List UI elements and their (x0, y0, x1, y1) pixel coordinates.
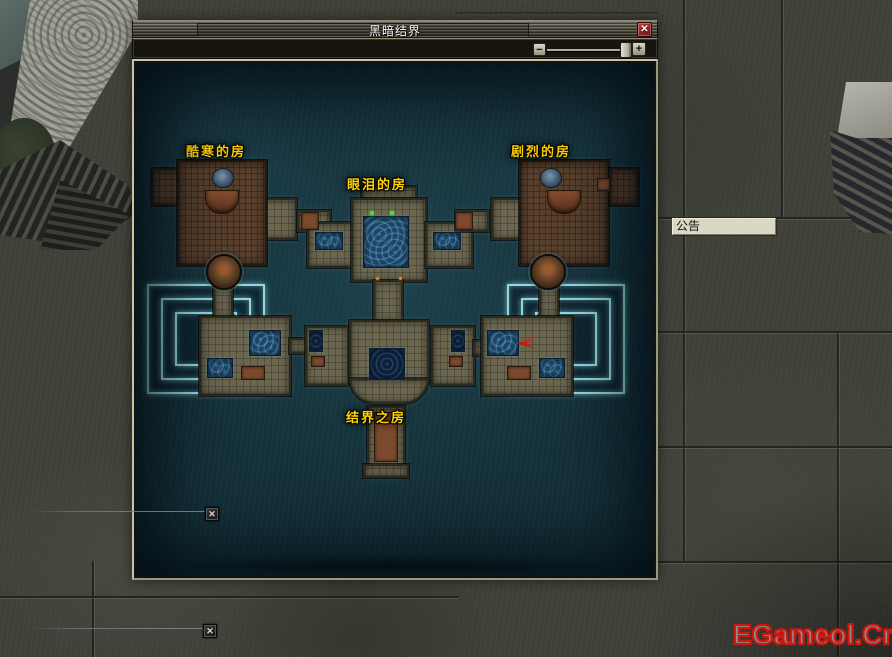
world-marker-icon[interactable]: ✕ (203, 624, 217, 638)
plus-icon: + (636, 43, 642, 55)
small-pool (433, 232, 461, 250)
close-icon: ✕ (640, 24, 648, 35)
corridor-south-cap (363, 464, 409, 478)
round-junction (206, 254, 242, 290)
room-label-barrier: 结界之房 (346, 407, 406, 426)
corridor-central (373, 280, 403, 322)
room-label-cold: 酷寒的房 (186, 141, 246, 160)
marker-line (30, 511, 206, 512)
close-button[interactable]: ✕ (637, 22, 652, 37)
round-junction (530, 254, 566, 290)
room-label-violent: 剧烈的房 (511, 141, 571, 160)
ground-seam (781, 0, 783, 219)
dungeon-map-viewport[interactable]: 酷寒的房 眼泪的房 剧烈的房 结界之房 (136, 63, 654, 576)
rust-deco (311, 356, 325, 367)
pillar-top-left (0, 0, 150, 255)
zoom-in-button[interactable]: + (632, 42, 646, 56)
small-pool (207, 358, 233, 378)
x-mark-icon: ✕ (208, 509, 216, 520)
announcement-label: 公告 (676, 219, 700, 233)
barrier-pool (369, 348, 405, 380)
ground-seam (658, 331, 892, 333)
corridor (213, 285, 233, 319)
status-dot-orange (376, 277, 379, 280)
zoom-out-button[interactable]: − (533, 43, 546, 56)
room-label-tears: 眼泪的房 (347, 174, 407, 193)
status-dot-orange (399, 277, 402, 280)
status-dot-green (370, 211, 374, 215)
small-pool (315, 232, 343, 250)
announcement-bar[interactable]: 公告 (672, 218, 776, 235)
tears-pool (363, 216, 409, 268)
zoom-slider-track[interactable] (547, 49, 631, 51)
window-titlebar[interactable]: 黑暗结界 ✕ (132, 20, 658, 38)
room-emblem (540, 168, 562, 188)
minus-icon: − (536, 44, 542, 56)
room-lower-left-shape (199, 316, 291, 396)
room-barrier-apse (349, 378, 429, 404)
small-pool (249, 330, 281, 356)
small-pool (309, 330, 323, 352)
world-marker-icon[interactable]: ✕ (205, 507, 219, 521)
rust-deco (241, 366, 265, 380)
marker-line (28, 628, 204, 629)
room-lower-right-shape (481, 316, 573, 396)
map-frame: 酷寒的房 眼泪的房 剧烈的房 结界之房 (132, 59, 658, 580)
small-pool (539, 358, 565, 378)
rust-deco (301, 212, 319, 230)
corridor (539, 285, 559, 319)
room-violent-annex (609, 168, 639, 206)
small-pool (487, 330, 519, 356)
small-pool (451, 330, 465, 352)
pillar-right (830, 82, 892, 237)
ground-seam (0, 596, 458, 598)
window-toolbar: − + (132, 38, 658, 59)
ground-seam (92, 561, 94, 657)
window-title: 黑暗结界 (133, 22, 657, 39)
ground-seam (658, 446, 892, 448)
rust-deco (455, 212, 473, 230)
x-mark-icon: ✕ (206, 626, 214, 637)
room-emblem (212, 168, 234, 188)
ground-seam (456, 12, 658, 14)
rust-deco (449, 356, 463, 367)
map-window: 黑暗结界 ✕ − + (132, 20, 658, 580)
status-dot-green (390, 211, 394, 215)
site-watermark: EGameol.Cn (733, 619, 892, 651)
corridor (597, 178, 610, 191)
zoom-slider-handle[interactable] (620, 42, 632, 58)
rust-deco (507, 366, 531, 380)
